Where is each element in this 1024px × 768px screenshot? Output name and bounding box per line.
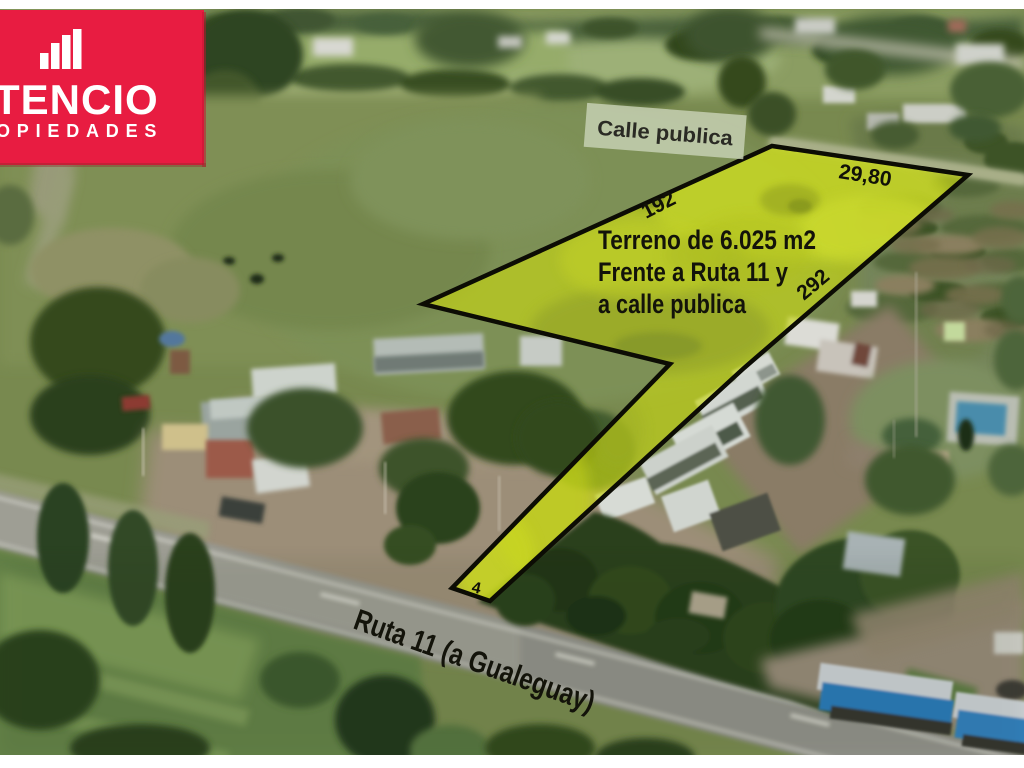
svg-text:Terreno de 6.025 m2: Terreno de 6.025 m2	[598, 225, 816, 255]
svg-text:TENCIO: TENCIO	[0, 76, 159, 123]
svg-text:a calle publica: a calle publica	[598, 289, 747, 319]
svg-text:OPIEDADES: OPIEDADES	[0, 121, 163, 141]
svg-text:Frente a Ruta 11 y: Frente a Ruta 11 y	[598, 257, 788, 287]
